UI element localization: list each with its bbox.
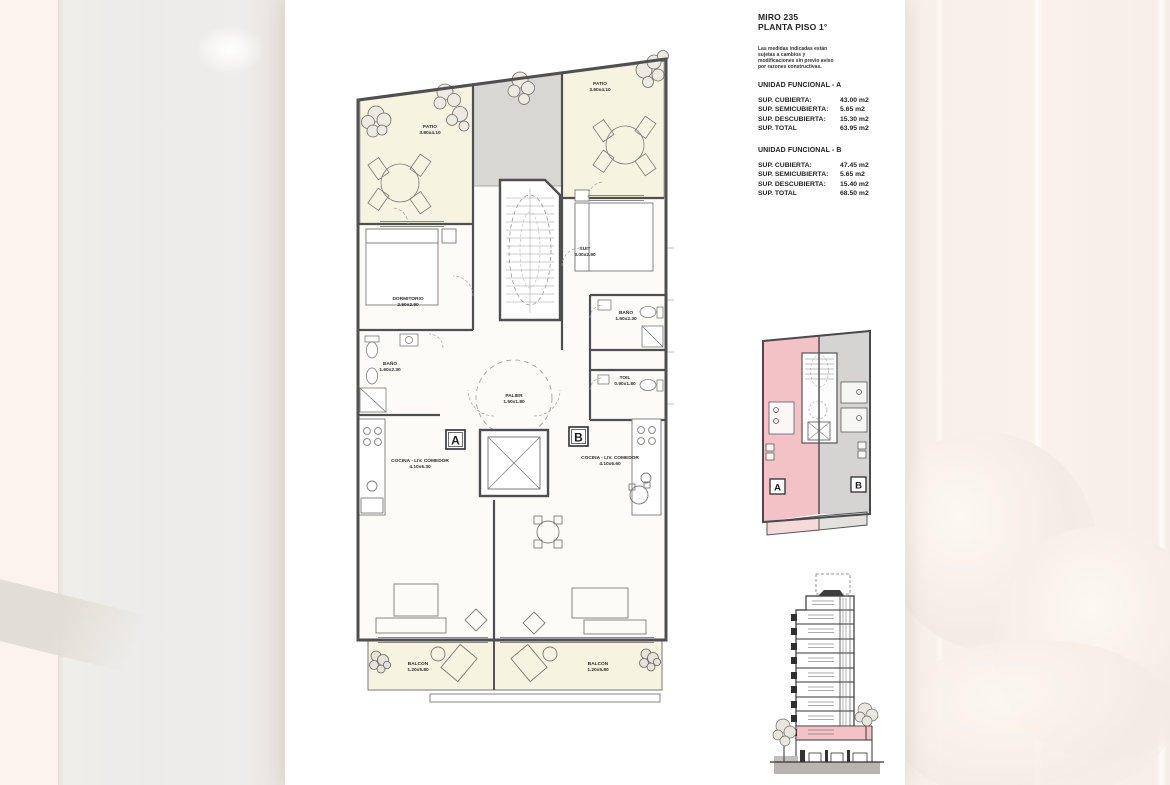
elevator-shaft xyxy=(480,430,548,496)
ceiling-light-glow xyxy=(195,25,265,75)
balcon-b-dim: 1.20x5.80 xyxy=(587,667,609,673)
row-value: 43.00 m2 xyxy=(840,96,878,105)
building-section-drawing xyxy=(768,560,886,782)
row-value: 5.65 m2 xyxy=(840,170,878,179)
screenshot-canvas: A B PATIO 3.80x4.10 PATIO 3.60x4.10 DORM… xyxy=(0,0,1170,785)
stair-shaft xyxy=(500,180,560,320)
palier-label: PALIER xyxy=(505,393,523,399)
keyplan-marker-a: A xyxy=(770,479,785,494)
row-label: SUP. CUBIERTA: xyxy=(758,161,812,170)
first-floor-highlight xyxy=(791,726,872,740)
row-label: SUP. SEMICUBIERTA: xyxy=(758,170,828,179)
suit-label: SUIT xyxy=(580,246,591,252)
bano-a-label: BAÑO xyxy=(383,360,397,367)
key-plan-drawing: A B xyxy=(757,326,875,538)
patio-b-label: PATIO xyxy=(593,81,607,87)
bano-b-dim: 1.60x2.30 xyxy=(615,316,637,322)
title-block: MIRO 235 PLANTA PISO 1° xyxy=(758,12,888,32)
kitchen-b xyxy=(629,419,661,515)
plan-sheet: A B PATIO 3.80x4.10 PATIO 3.60x4.10 DORM… xyxy=(285,0,905,785)
keyplan-b-letter: B xyxy=(855,481,862,492)
table-row: SUP. TOTAL 63.95 m2 xyxy=(758,124,878,133)
cocina-b-dim: 4.10x6.60 xyxy=(599,461,621,467)
ground-floor xyxy=(796,740,872,762)
keyplan-a-letter: A xyxy=(774,483,781,494)
row-value: 5.65 m2 xyxy=(840,105,878,114)
roof-slab xyxy=(818,590,844,596)
bano-b-label: BAÑO xyxy=(619,309,633,316)
dormitorio-label: DORMITORIO xyxy=(392,296,423,302)
cocina-a-dim: 4.10x6.30 xyxy=(409,464,431,470)
bano-a-dim: 1.60x2.30 xyxy=(379,367,401,373)
background-photo-left xyxy=(0,0,285,785)
dormitorio-dim: 2.50x2.90 xyxy=(397,302,419,308)
row-value: 15.30 m2 xyxy=(840,115,878,124)
unit-b-table: UNIDAD FUNCIONAL - B SUP. CUBIERTA: 47.4… xyxy=(758,147,878,199)
table-row: SUP. DESCUBIERTA: 15.30 m2 xyxy=(758,115,878,124)
table-row: SUP. SEMICUBIERTA: 5.65 m2 xyxy=(758,170,878,179)
keyplan-marker-b: B xyxy=(851,477,866,492)
cocina-b-label: COCINA - LIV. COMEDOR xyxy=(581,455,639,461)
row-label: SUP. SEMICUBIERTA: xyxy=(758,105,828,114)
row-value: 15.40 m2 xyxy=(840,180,878,189)
unit-a-marker: A xyxy=(446,430,465,449)
patio-a-dim: 3.80x4.10 xyxy=(419,130,441,136)
unit-b-heading: UNIDAD FUNCIONAL - B xyxy=(758,147,878,154)
table-row: SUP. SEMICUBIERTA: 5.65 m2 xyxy=(758,105,878,114)
table-row: SUP. CUBIERTA: 47.45 m2 xyxy=(758,161,878,170)
row-label: SUP. DESCUBIERTA: xyxy=(758,180,826,189)
unit-b-marker: B xyxy=(569,427,588,446)
disclaimer-line: por razones constructivas. xyxy=(758,64,888,70)
toil-label: TOIL xyxy=(620,375,631,381)
unit-b-letter: B xyxy=(574,431,583,445)
row-label: SUP. CUBIERTA: xyxy=(758,96,812,105)
balcon-b-label: BALCON xyxy=(588,661,609,667)
patio-b-dim: 3.60x4.10 xyxy=(589,87,611,93)
background-photo-right xyxy=(905,0,1170,785)
cocina-a-label: COCINA - LIV. COMEDOR xyxy=(391,458,449,464)
kitchen-a xyxy=(359,419,385,515)
balcon-a-dim: 1.20x5.80 xyxy=(407,667,429,673)
row-value: 63.95 m2 xyxy=(840,124,878,133)
table-row: SUP. DESCUBIERTA: 15.40 m2 xyxy=(758,180,878,189)
row-value: 68.50 m2 xyxy=(840,189,878,198)
unit-a-table: UNIDAD FUNCIONAL - A SUP. CUBIERTA: 43.0… xyxy=(758,82,878,134)
palier-dim: 1.50x1.80 xyxy=(503,399,525,405)
unit-a-heading: UNIDAD FUNCIONAL - A xyxy=(758,82,878,89)
unit-a-letter: A xyxy=(451,434,460,448)
patio-a-label: PATIO xyxy=(423,124,437,130)
baseboard-shape xyxy=(0,574,194,685)
table-row: SUP. TOTAL 68.50 m2 xyxy=(758,189,878,198)
table-row: SUP. CUBIERTA: 43.00 m2 xyxy=(758,96,878,105)
toil-dim: 0.90x1.80 xyxy=(614,381,636,387)
row-label: SUP. DESCUBIERTA: xyxy=(758,115,826,124)
wall-corner-shadow xyxy=(58,0,64,785)
row-label: SUP. TOTAL xyxy=(758,124,797,133)
sheet-title: PLANTA PISO 1° xyxy=(758,22,888,32)
row-value: 47.45 m2 xyxy=(840,161,878,170)
balcon-a-label: BALCON xyxy=(408,661,429,667)
disclaimer-note: Las medidas indicadas están sujetas a ca… xyxy=(758,46,888,70)
row-label: SUP. TOTAL xyxy=(758,189,797,198)
floor-plan-drawing: A B PATIO 3.80x4.10 PATIO 3.60x4.10 DORM… xyxy=(348,48,678,708)
suit-dim: 3.00x2.90 xyxy=(574,252,596,258)
project-title: MIRO 235 xyxy=(758,12,888,22)
